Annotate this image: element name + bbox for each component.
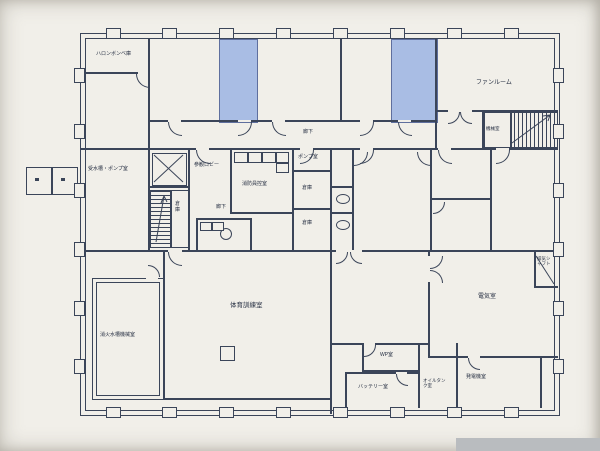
wall bbox=[435, 38, 437, 150]
room-label-halon: ハロンボンベ庫 bbox=[96, 52, 131, 58]
wall bbox=[332, 186, 354, 188]
room-label-training: 体育訓練室 bbox=[230, 302, 263, 309]
room-label-generator: 発電機室 bbox=[466, 375, 486, 381]
column-pilaster bbox=[553, 242, 564, 257]
wall bbox=[345, 372, 347, 408]
wall bbox=[534, 286, 558, 288]
column-pilaster bbox=[74, 124, 85, 139]
column-pilaster bbox=[219, 28, 234, 39]
room-label-battery: バッテリー室 bbox=[358, 385, 388, 391]
column-pilaster bbox=[333, 28, 348, 39]
wall bbox=[196, 218, 198, 250]
wall bbox=[540, 356, 542, 408]
room-label-storage-stair: 倉庫 bbox=[175, 202, 181, 214]
wall bbox=[292, 170, 332, 172]
wall bbox=[330, 252, 332, 414]
column-pilaster bbox=[504, 407, 519, 418]
fixture bbox=[200, 222, 212, 231]
wall bbox=[230, 150, 232, 214]
column-pilaster bbox=[390, 407, 405, 418]
room-label-corridor-top: 廊下 bbox=[303, 130, 313, 136]
wall bbox=[292, 150, 294, 250]
highlighted-room-left bbox=[219, 39, 258, 123]
wall bbox=[432, 198, 490, 200]
exterior-box-left bbox=[26, 167, 52, 195]
fixture bbox=[336, 194, 350, 204]
column-pilaster bbox=[276, 28, 291, 39]
room-label-storage-b: 倉庫 bbox=[302, 221, 312, 227]
room-label-firefighter-room: 消防員控室 bbox=[242, 182, 267, 188]
elevator bbox=[152, 153, 187, 186]
wall bbox=[340, 38, 342, 122]
wall bbox=[330, 148, 332, 250]
fixture bbox=[276, 152, 289, 163]
column-pilaster bbox=[553, 183, 564, 198]
column-pilaster bbox=[390, 28, 405, 39]
room-label-corridor-mid: 廊下 bbox=[216, 205, 226, 211]
door-opening bbox=[146, 277, 158, 281]
column-pilaster bbox=[333, 407, 348, 418]
column-pilaster bbox=[553, 301, 564, 316]
caption-strip bbox=[456, 438, 600, 451]
wall bbox=[534, 252, 536, 288]
tiny-mark bbox=[61, 178, 65, 181]
wall bbox=[292, 208, 332, 210]
column-pilaster bbox=[553, 124, 564, 139]
tiny-mark bbox=[35, 178, 39, 181]
fixture bbox=[248, 152, 262, 163]
stairs-core bbox=[150, 190, 172, 248]
room-label-pump-small: ポンプ室 bbox=[298, 155, 318, 161]
fixture bbox=[212, 222, 224, 231]
column-pilaster bbox=[447, 407, 462, 418]
room-label-lobby: 参観ロビー bbox=[194, 163, 219, 169]
room-label-machine-small: 機械室 bbox=[486, 126, 500, 131]
room-label-fan-room: ファンルーム bbox=[476, 80, 512, 87]
wall bbox=[490, 150, 492, 250]
wall bbox=[330, 343, 430, 345]
fixture bbox=[276, 163, 289, 173]
wall bbox=[80, 250, 558, 252]
column-pilaster bbox=[504, 28, 519, 39]
column-pilaster bbox=[74, 68, 85, 83]
fixture bbox=[262, 152, 276, 163]
wall bbox=[428, 356, 558, 358]
wall bbox=[150, 186, 188, 188]
column-pilaster bbox=[74, 183, 85, 198]
column-pilaster bbox=[74, 301, 85, 316]
wall bbox=[332, 212, 354, 214]
column-pilaster bbox=[74, 242, 85, 257]
column-pilaster bbox=[162, 28, 177, 39]
fixture bbox=[234, 152, 248, 163]
room-label-water-tank-pump: 受水槽・ポンプ室 bbox=[88, 167, 128, 173]
room-label-storage-a: 倉庫 bbox=[302, 186, 312, 192]
room-label-wp: WP室 bbox=[380, 353, 393, 359]
column-pilaster bbox=[106, 407, 121, 418]
room-label-fire-tank-machine: 消火水槽機械室 bbox=[100, 333, 135, 339]
wall bbox=[148, 120, 437, 122]
column-pilaster bbox=[162, 407, 177, 418]
wall bbox=[196, 218, 252, 220]
column-pilaster bbox=[553, 68, 564, 83]
column-pilaster bbox=[447, 28, 462, 39]
room-label-shaft: 排気シャフト bbox=[537, 256, 551, 266]
wall bbox=[80, 148, 558, 150]
room-label-electrical: 電気室 bbox=[478, 294, 496, 301]
highlighted-room-right bbox=[391, 39, 438, 123]
wall bbox=[456, 343, 458, 408]
column-pilaster bbox=[276, 407, 291, 418]
wall bbox=[418, 343, 420, 408]
room-label-oil-tank: オイルタンク室 bbox=[423, 378, 447, 388]
floor-plan: ハロンボンベ庫 ファンルーム 機械室 廊下 ポンプ室 受水槽・ポンプ室 参観ロビ… bbox=[0, 0, 600, 451]
column-pilaster bbox=[74, 359, 85, 374]
stairs-top-right bbox=[510, 112, 558, 148]
wall bbox=[230, 212, 294, 214]
wall bbox=[163, 398, 332, 400]
wall bbox=[148, 38, 150, 150]
storage-closet bbox=[170, 190, 190, 248]
fixture bbox=[336, 220, 350, 230]
column-pilaster bbox=[553, 359, 564, 374]
pillar bbox=[220, 346, 235, 361]
wall bbox=[250, 218, 252, 250]
column-pilaster bbox=[219, 407, 234, 418]
wall bbox=[86, 72, 138, 74]
tank-room-inner bbox=[96, 282, 160, 396]
column-pilaster bbox=[106, 28, 121, 39]
